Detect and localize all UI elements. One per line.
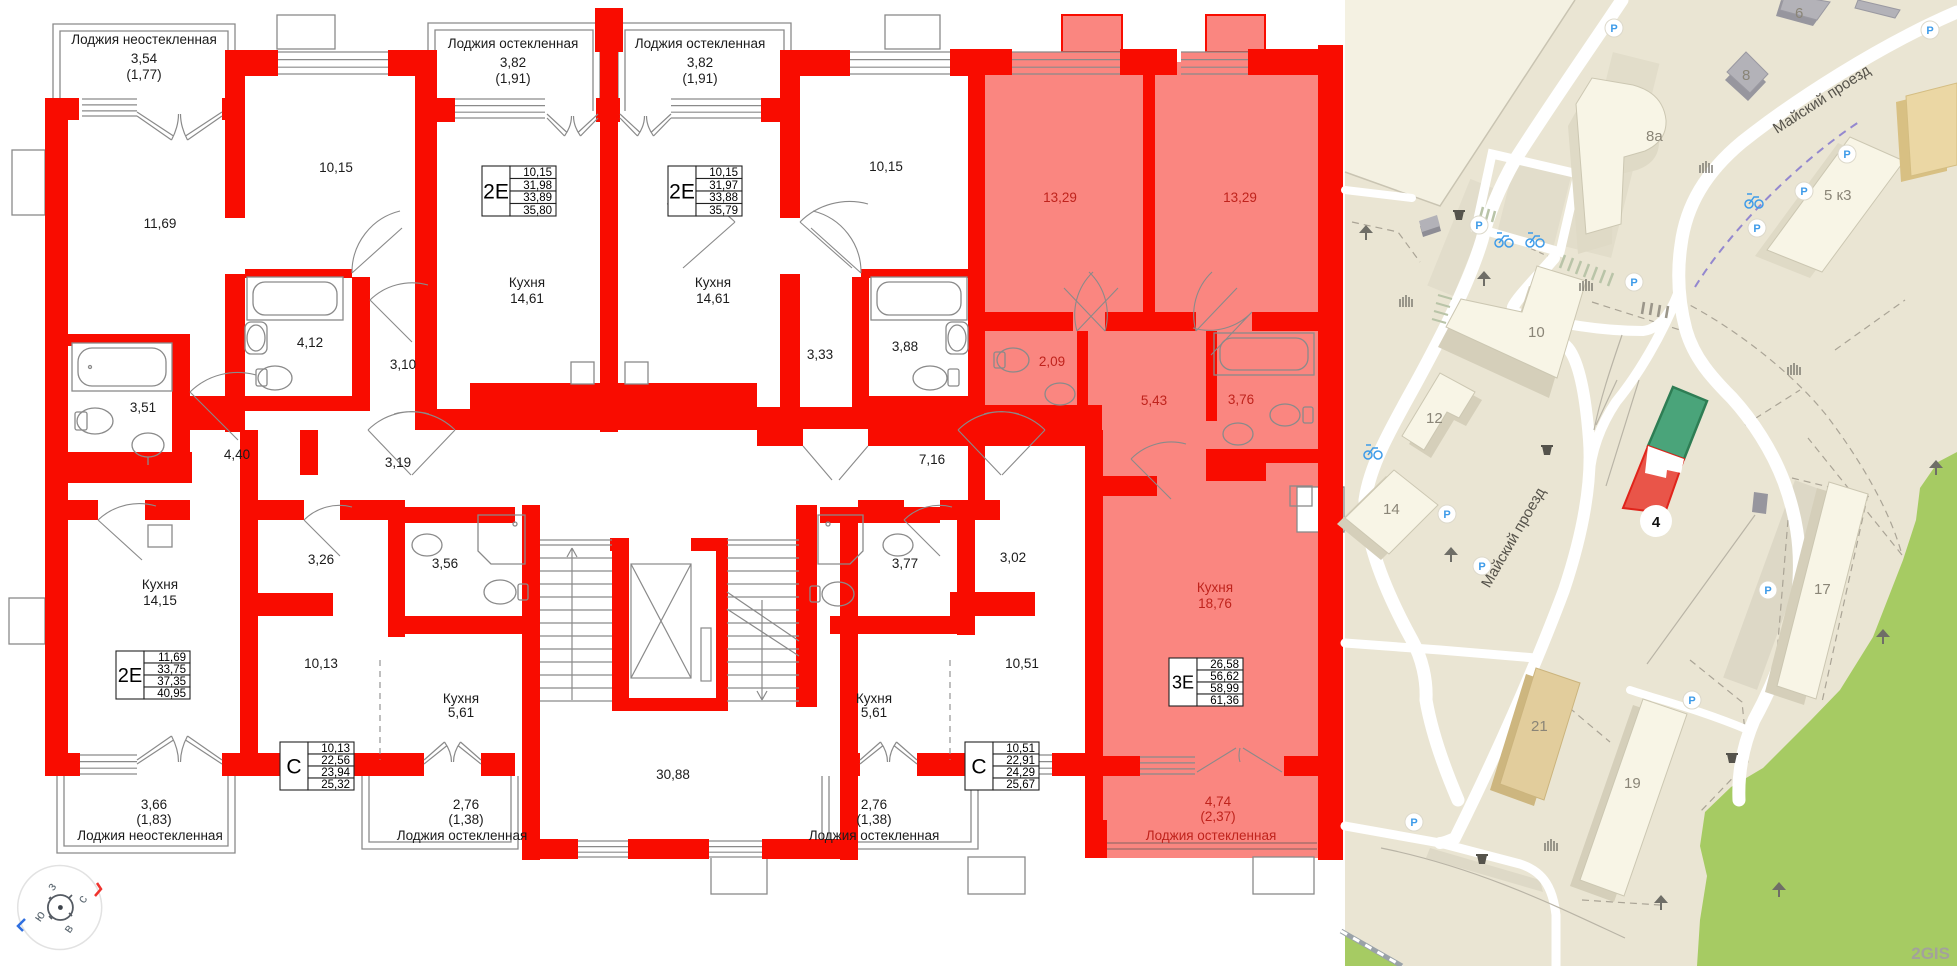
svg-text:33,75: 33,75: [157, 664, 186, 676]
svg-text:3,88: 3,88: [892, 339, 918, 354]
svg-text:P: P: [1764, 585, 1771, 597]
svg-text:14,61: 14,61: [696, 291, 730, 306]
svg-text:10,13: 10,13: [304, 656, 338, 671]
svg-text:31,98: 31,98: [523, 180, 552, 192]
svg-text:2,09: 2,09: [1039, 354, 1065, 369]
svg-text:С: С: [286, 756, 301, 779]
svg-text:40,95: 40,95: [157, 688, 186, 700]
svg-text:2Е: 2Е: [669, 181, 695, 204]
svg-text:P: P: [1926, 25, 1933, 37]
svg-text:5,61: 5,61: [861, 705, 887, 720]
svg-text:14: 14: [1383, 501, 1400, 518]
svg-text:P: P: [1800, 186, 1807, 198]
svg-text:25,67: 25,67: [1006, 779, 1035, 791]
svg-text:22,91: 22,91: [1006, 755, 1035, 767]
svg-text:10,51: 10,51: [1006, 743, 1035, 755]
svg-text:3,26: 3,26: [308, 552, 334, 567]
svg-text:14,61: 14,61: [510, 291, 544, 306]
svg-text:35,80: 35,80: [523, 205, 552, 217]
svg-text:(1,83): (1,83): [136, 812, 171, 827]
svg-text:P: P: [1843, 149, 1850, 161]
svg-text:4,40: 4,40: [224, 447, 250, 462]
svg-text:13,29: 13,29: [1043, 190, 1077, 205]
svg-text:10: 10: [1528, 324, 1545, 341]
svg-text:4,74: 4,74: [1205, 794, 1232, 809]
svg-text:P: P: [1753, 223, 1760, 235]
svg-text:8: 8: [1742, 67, 1750, 84]
svg-text:6: 6: [1795, 5, 1803, 22]
svg-text:4: 4: [1652, 514, 1661, 531]
svg-text:10,15: 10,15: [709, 167, 738, 179]
svg-text:3,33: 3,33: [807, 347, 833, 362]
svg-text:P: P: [1688, 695, 1695, 707]
svg-text:Кухня: Кухня: [1197, 580, 1233, 595]
svg-text:2,76: 2,76: [861, 797, 887, 812]
svg-text:56,62: 56,62: [1210, 671, 1239, 683]
svg-text:Лоджия неостекленная: Лоджия неостекленная: [77, 828, 223, 843]
svg-text:14,15: 14,15: [143, 593, 177, 608]
svg-text:Кухня: Кухня: [856, 691, 892, 706]
svg-text:(1,91): (1,91): [682, 71, 717, 86]
svg-text:13,29: 13,29: [1223, 190, 1257, 205]
svg-text:(2,37): (2,37): [1200, 809, 1235, 824]
svg-text:3Е: 3Е: [1172, 673, 1194, 693]
svg-text:2GIS: 2GIS: [1911, 944, 1950, 963]
svg-text:(1,91): (1,91): [495, 71, 530, 86]
svg-text:3,82: 3,82: [687, 55, 713, 70]
svg-text:10,15: 10,15: [869, 159, 903, 174]
svg-text:P: P: [1443, 509, 1450, 521]
svg-text:3,82: 3,82: [500, 55, 526, 70]
svg-text:33,88: 33,88: [709, 192, 738, 204]
svg-text:Кухня: Кухня: [695, 275, 731, 290]
svg-text:23,94: 23,94: [321, 767, 350, 779]
svg-text:25,32: 25,32: [321, 779, 350, 791]
svg-text:11,69: 11,69: [158, 652, 186, 664]
svg-text:P: P: [1410, 817, 1417, 829]
svg-text:17: 17: [1814, 581, 1831, 598]
svg-text:58,99: 58,99: [1210, 683, 1239, 695]
svg-text:Кухня: Кухня: [142, 577, 178, 592]
svg-text:3,02: 3,02: [1000, 550, 1026, 565]
svg-text:7,16: 7,16: [919, 452, 945, 467]
svg-text:С: С: [971, 756, 986, 779]
svg-text:Лоджия неостекленная: Лоджия неостекленная: [71, 32, 217, 47]
svg-text:(1,38): (1,38): [856, 812, 891, 827]
svg-text:2,76: 2,76: [453, 797, 479, 812]
svg-text:P: P: [1475, 220, 1482, 232]
svg-text:10,13: 10,13: [321, 743, 350, 755]
svg-text:Лоджия остекленная: Лоджия остекленная: [448, 36, 579, 51]
svg-text:5,61: 5,61: [448, 705, 474, 720]
svg-text:P: P: [1478, 561, 1485, 573]
svg-text:Лоджия остекленная: Лоджия остекленная: [809, 828, 940, 843]
svg-text:3,51: 3,51: [130, 400, 156, 415]
svg-text:12: 12: [1426, 410, 1443, 427]
svg-text:3,77: 3,77: [892, 556, 918, 571]
svg-text:8а: 8а: [1646, 128, 1663, 145]
svg-text:21: 21: [1531, 718, 1548, 735]
svg-text:61,36: 61,36: [1210, 695, 1239, 707]
svg-text:3,56: 3,56: [432, 556, 458, 571]
svg-text:30,88: 30,88: [656, 767, 690, 782]
svg-text:10,15: 10,15: [319, 160, 353, 175]
svg-text:31,97: 31,97: [709, 180, 738, 192]
svg-text:P: P: [1610, 23, 1617, 35]
svg-text:2Е: 2Е: [483, 181, 509, 204]
svg-text:P: P: [1630, 277, 1637, 289]
svg-text:33,89: 33,89: [523, 192, 552, 204]
svg-text:4,12: 4,12: [297, 335, 323, 350]
svg-text:3,54: 3,54: [131, 51, 158, 66]
svg-text:5 к3: 5 к3: [1824, 187, 1851, 204]
svg-text:5,43: 5,43: [1141, 393, 1167, 408]
svg-text:37,35: 37,35: [157, 676, 186, 688]
svg-text:Кухня: Кухня: [509, 275, 545, 290]
svg-text:3,76: 3,76: [1228, 392, 1254, 407]
svg-text:11,69: 11,69: [144, 216, 177, 231]
svg-text:3,66: 3,66: [141, 797, 167, 812]
svg-text:19: 19: [1624, 775, 1641, 792]
svg-text:Лоджия остекленная: Лоджия остекленная: [635, 36, 766, 51]
svg-text:Лоджия остекленная: Лоджия остекленная: [1146, 828, 1277, 843]
svg-text:(1,77): (1,77): [126, 67, 161, 82]
svg-text:26,58: 26,58: [1210, 659, 1239, 671]
svg-text:3,10: 3,10: [390, 357, 416, 372]
svg-text:Кухня: Кухня: [443, 691, 479, 706]
svg-text:Лоджия остекленная: Лоджия остекленная: [397, 828, 528, 843]
svg-text:(1,38): (1,38): [448, 812, 483, 827]
svg-text:10,51: 10,51: [1005, 656, 1039, 671]
svg-text:10,15: 10,15: [523, 167, 552, 179]
svg-text:3,19: 3,19: [385, 455, 411, 470]
svg-text:22,56: 22,56: [321, 755, 350, 767]
svg-text:2Е: 2Е: [118, 665, 142, 687]
svg-text:24,29: 24,29: [1006, 767, 1035, 779]
svg-text:35,79: 35,79: [709, 205, 738, 217]
svg-text:18,76: 18,76: [1198, 596, 1232, 611]
